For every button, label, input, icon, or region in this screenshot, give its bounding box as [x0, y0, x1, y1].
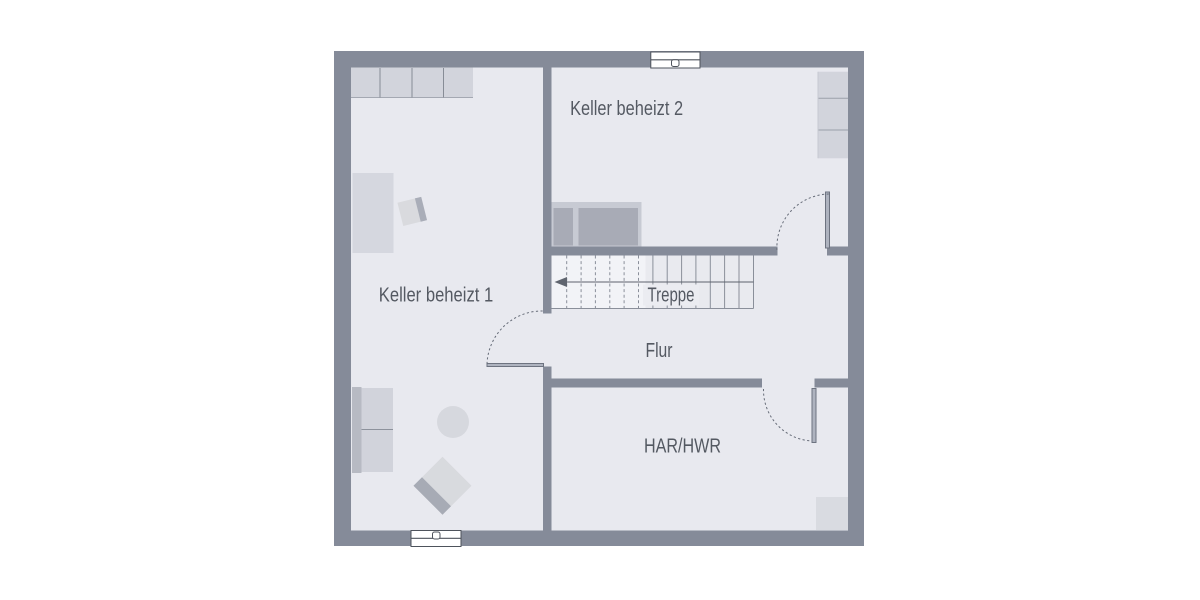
svg-text:HAR/HWR: HAR/HWR: [644, 436, 721, 458]
svg-text:Keller beheizt 1: Keller beheizt 1: [379, 285, 494, 307]
svg-text:Keller beheizt 2: Keller beheizt 2: [570, 98, 683, 120]
svg-text:Treppe: Treppe: [648, 285, 695, 307]
svg-text:Flur: Flur: [646, 340, 673, 362]
